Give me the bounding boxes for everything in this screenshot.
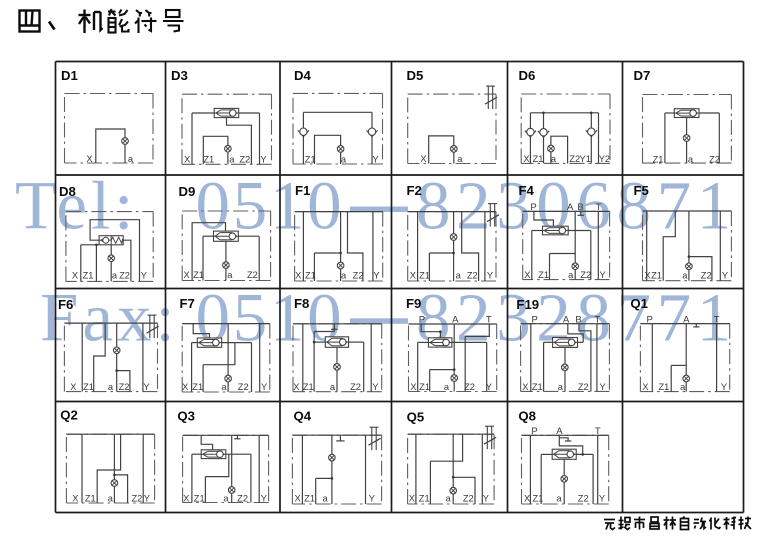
svg-text:Y1: Y1: [580, 154, 591, 164]
svg-text:X: X: [524, 270, 530, 280]
svg-text:Q8: Q8: [518, 409, 536, 424]
svg-text:Y: Y: [599, 494, 605, 504]
svg-text:F9: F9: [406, 296, 421, 311]
svg-text:Z2: Z2: [119, 382, 130, 392]
svg-text:Z1: Z1: [305, 270, 316, 280]
svg-text:a: a: [457, 154, 463, 164]
svg-text:F4: F4: [519, 183, 535, 198]
svg-text:Z1: Z1: [419, 382, 430, 392]
svg-text:Y: Y: [372, 382, 378, 392]
svg-text:X: X: [644, 270, 650, 280]
svg-text:a: a: [568, 270, 574, 280]
svg-text:Y: Y: [599, 382, 605, 392]
svg-text:Z1: Z1: [85, 494, 96, 504]
svg-text:X: X: [295, 270, 301, 280]
svg-text:D7: D7: [634, 68, 651, 83]
svg-text:X: X: [86, 154, 92, 164]
svg-text:Y: Y: [260, 154, 266, 164]
svg-text:Z1: Z1: [83, 271, 94, 281]
svg-text:Y: Y: [372, 154, 378, 164]
svg-text:Z1: Z1: [419, 270, 430, 280]
svg-text:Z2: Z2: [239, 154, 250, 164]
svg-text:Z1: Z1: [658, 382, 669, 392]
svg-text:D4: D4: [294, 68, 312, 83]
svg-text:Q2: Q2: [60, 408, 78, 423]
svg-text:Z2: Z2: [709, 154, 720, 164]
svg-text:a: a: [556, 494, 562, 504]
svg-text:D1: D1: [61, 68, 78, 83]
svg-text:Z1: Z1: [83, 382, 94, 392]
svg-text:Z2: Z2: [463, 494, 474, 504]
svg-text:Z1: Z1: [532, 494, 543, 504]
svg-text:a: a: [323, 494, 329, 504]
svg-text:Tel:: Tel:: [15, 168, 137, 244]
svg-text:Z2: Z2: [578, 382, 589, 392]
svg-text:a: a: [223, 494, 229, 504]
svg-text:Z2: Z2: [119, 271, 130, 281]
svg-text:a: a: [108, 494, 114, 504]
svg-text:Y: Y: [722, 270, 728, 280]
svg-text:Z2: Z2: [131, 494, 142, 504]
svg-text:X: X: [420, 154, 426, 164]
svg-text:X: X: [409, 494, 415, 504]
svg-text:Z2: Z2: [464, 382, 475, 392]
svg-text:a: a: [330, 382, 336, 392]
svg-text:F19: F19: [516, 297, 539, 312]
svg-text:a: a: [682, 270, 688, 280]
svg-text:Z1: Z1: [305, 154, 316, 164]
svg-text:Z1: Z1: [532, 382, 543, 392]
svg-text:X: X: [294, 494, 300, 504]
svg-text:a: a: [128, 154, 134, 164]
svg-text:Y: Y: [483, 494, 489, 504]
svg-text:Z1: Z1: [192, 382, 203, 392]
svg-text:Z1: Z1: [193, 270, 204, 280]
svg-text:F6: F6: [58, 297, 73, 312]
svg-text:a: a: [551, 154, 557, 164]
svg-text:Z2: Z2: [578, 494, 589, 504]
svg-text:Z1: Z1: [419, 494, 430, 504]
svg-text:X: X: [70, 382, 76, 392]
svg-text:Z2: Z2: [238, 382, 249, 392]
svg-text:X: X: [183, 270, 189, 280]
svg-text:a: a: [221, 382, 227, 392]
svg-text:Y: Y: [486, 382, 492, 392]
svg-text:Y2: Y2: [599, 154, 610, 164]
svg-text:Z1: Z1: [538, 270, 549, 280]
svg-text:F2: F2: [407, 183, 422, 198]
svg-text:F1: F1: [295, 183, 310, 198]
svg-text:X: X: [72, 494, 78, 504]
svg-text:X: X: [524, 494, 530, 504]
svg-text:D3: D3: [171, 68, 188, 83]
svg-text:Q5: Q5: [407, 410, 425, 425]
svg-text:Y: Y: [487, 270, 493, 280]
svg-text:Y: Y: [369, 494, 375, 504]
svg-text:X: X: [183, 494, 189, 504]
svg-text:a: a: [112, 271, 118, 281]
svg-text:Z2: Z2: [353, 270, 364, 280]
svg-text:a: a: [680, 382, 686, 392]
svg-text:Z2: Z2: [580, 270, 591, 280]
svg-text:Z2: Z2: [467, 270, 478, 280]
svg-text:X: X: [72, 271, 78, 281]
svg-text:a: a: [108, 382, 114, 392]
svg-text:a: a: [229, 154, 235, 164]
svg-text:a: a: [444, 382, 450, 392]
svg-text:Y: Y: [721, 382, 727, 392]
svg-text:X: X: [410, 270, 416, 280]
svg-text:Y: Y: [141, 271, 147, 281]
svg-text:X: X: [522, 382, 528, 392]
svg-text:F8: F8: [294, 296, 309, 311]
svg-text:Y: Y: [144, 494, 150, 504]
svg-text:X: X: [410, 382, 416, 392]
svg-text:Q1: Q1: [630, 296, 648, 311]
svg-text:Q3: Q3: [177, 409, 195, 424]
svg-text:Z1: Z1: [533, 154, 544, 164]
svg-text:Y: Y: [143, 382, 149, 392]
svg-text:Z1: Z1: [303, 382, 314, 392]
svg-text:a: a: [456, 270, 462, 280]
svg-text:Z2: Z2: [701, 270, 712, 280]
svg-text:F7: F7: [180, 296, 195, 311]
svg-text:a: a: [558, 382, 564, 392]
svg-text:Y: Y: [261, 494, 267, 504]
svg-text:Z2: Z2: [237, 494, 248, 504]
svg-text:Q4: Q4: [294, 409, 312, 424]
svg-text:X: X: [523, 154, 529, 164]
svg-text:Y: Y: [261, 382, 267, 392]
svg-text:a: a: [446, 494, 452, 504]
svg-text:X: X: [293, 382, 299, 392]
svg-text:D9: D9: [179, 184, 196, 199]
svg-text:Z1: Z1: [651, 270, 662, 280]
svg-text:Z1: Z1: [203, 154, 214, 164]
svg-text:Y: Y: [373, 270, 379, 280]
svg-text:Z1: Z1: [194, 494, 205, 504]
svg-text:X: X: [184, 154, 190, 164]
svg-text:a: a: [341, 154, 347, 164]
svg-text:D8: D8: [59, 184, 76, 199]
svg-text:a: a: [341, 270, 347, 280]
svg-text:D6: D6: [519, 68, 536, 83]
svg-text:X: X: [642, 382, 648, 392]
svg-text:F5: F5: [634, 183, 649, 198]
svg-text:Z1: Z1: [304, 494, 315, 504]
svg-text:Z2: Z2: [350, 382, 361, 392]
svg-text:a: a: [227, 270, 233, 280]
svg-text:Z1: Z1: [653, 154, 664, 164]
svg-text:Z2: Z2: [247, 270, 258, 280]
svg-text:Y: Y: [599, 270, 605, 280]
svg-text:Z2: Z2: [569, 154, 580, 164]
svg-text:a: a: [688, 154, 694, 164]
svg-text:D5: D5: [407, 68, 424, 83]
svg-text:X: X: [182, 382, 188, 392]
